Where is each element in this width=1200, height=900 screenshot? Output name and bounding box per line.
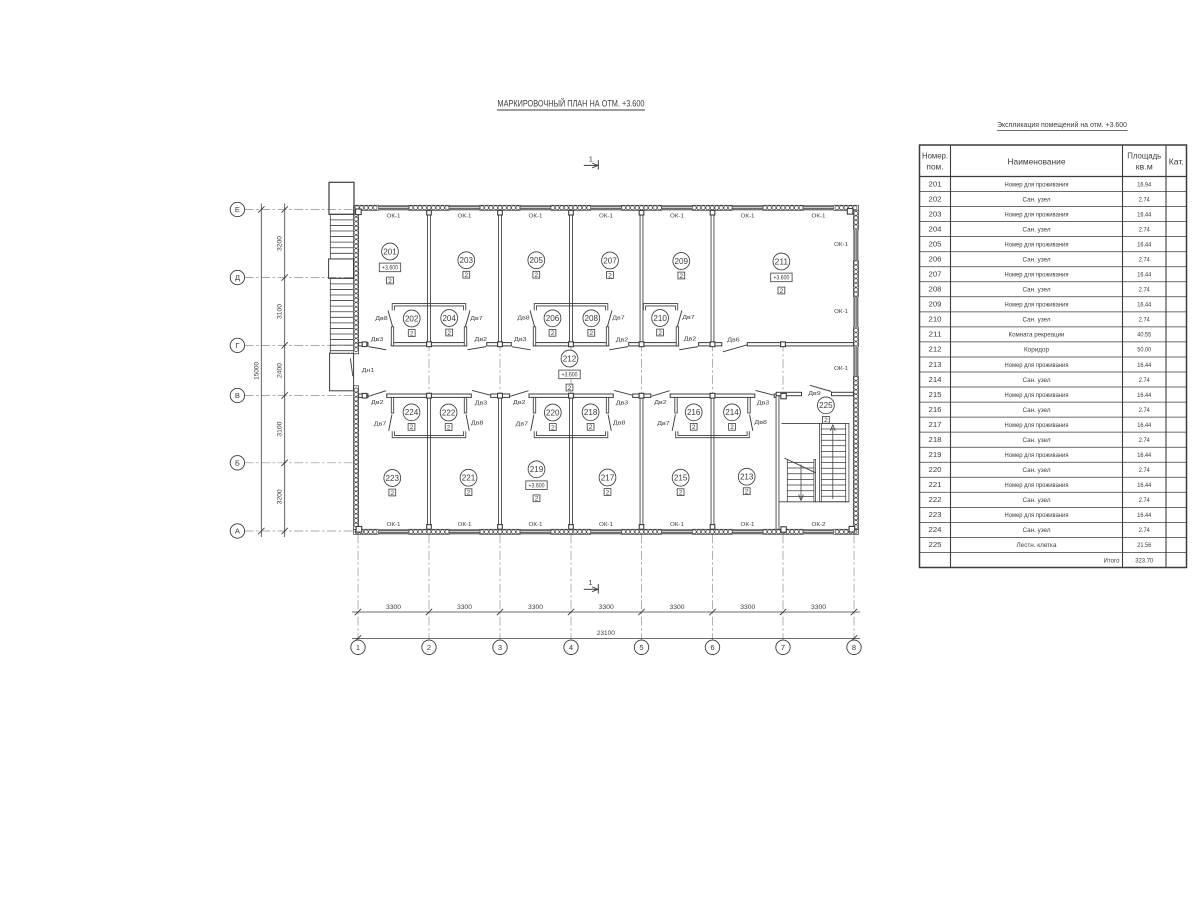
svg-text:Сан. узел: Сан. узел [1023,196,1051,203]
svg-text:Наименование: Наименование [1008,157,1066,167]
svg-text:Коридор: Коридор [1024,347,1049,354]
svg-text:3200: 3200 [277,236,284,251]
svg-text:2.74: 2.74 [1139,527,1150,534]
svg-text:2.74: 2.74 [1139,257,1150,264]
svg-text:ОК-1: ОК-1 [458,522,472,528]
svg-text:ОК-1: ОК-1 [812,214,826,220]
svg-text:ОК-1: ОК-1 [387,214,401,220]
svg-text:Сан. узел: Сан. узел [1023,527,1051,534]
svg-text:2.74: 2.74 [1139,437,1150,444]
svg-text:2: 2 [388,278,392,285]
svg-text:+3.600: +3.600 [382,265,398,272]
svg-text:ОК-1: ОК-1 [834,242,848,248]
svg-text:Дв8: Дв8 [471,421,484,427]
svg-text:206: 206 [929,257,942,264]
svg-text:Дв7: Дв7 [374,421,387,427]
svg-text:16.44: 16.44 [1137,272,1151,279]
svg-text:Сан. узел: Сан. узел [1023,467,1051,474]
svg-text:2.74: 2.74 [1139,497,1150,504]
svg-text:2: 2 [824,417,828,424]
svg-text:Дв3: Дв3 [757,400,770,406]
svg-text:2.74: 2.74 [1139,226,1150,233]
svg-text:2: 2 [780,288,784,295]
svg-text:2: 2 [410,424,414,431]
svg-text:214: 214 [725,408,739,417]
svg-text:2: 2 [391,490,395,497]
svg-text:Сан. узел: Сан. узел [1023,317,1051,324]
svg-text:2: 2 [606,489,610,496]
svg-text:Номер для проживания: Номер для проживания [1005,392,1069,399]
svg-text:2: 2 [589,424,593,431]
svg-text:2: 2 [680,273,684,280]
svg-text:220: 220 [546,408,560,417]
svg-text:208: 208 [929,287,942,294]
svg-text:2.74: 2.74 [1139,196,1150,203]
svg-text:207: 207 [929,272,942,279]
svg-text:210: 210 [929,317,942,324]
svg-text:205: 205 [929,241,942,248]
svg-text:ОК-1: ОК-1 [529,522,543,528]
svg-text:2: 2 [679,490,683,497]
svg-text:2: 2 [535,272,539,279]
svg-text:МАРКИРОВОЧНЫЙ ПЛАН НА ОТМ. +3.: МАРКИРОВОЧНЫЙ ПЛАН НА ОТМ. +3.600 [498,98,645,109]
svg-text:2: 2 [465,272,469,279]
svg-text:50.00: 50.00 [1137,347,1151,354]
svg-text:2400: 2400 [277,362,284,377]
svg-text:Дн1: Дн1 [362,368,375,374]
svg-text:1: 1 [356,643,360,652]
svg-text:ОК-1: ОК-1 [387,522,401,528]
svg-text:7: 7 [781,643,785,652]
svg-text:223: 223 [386,474,400,483]
svg-text:3300: 3300 [457,604,472,611]
svg-text:204: 204 [929,226,942,233]
svg-text:8: 8 [852,643,856,652]
svg-text:209: 209 [675,257,689,266]
svg-text:16.44: 16.44 [1137,392,1151,399]
svg-text:218: 218 [584,408,598,417]
svg-text:+3.600: +3.600 [773,275,789,282]
svg-text:Д: Д [235,273,240,282]
svg-text:204: 204 [442,314,456,323]
svg-text:5: 5 [639,643,643,652]
svg-text:Номер для проживания: Номер для проживания [1005,512,1069,519]
svg-text:2: 2 [447,330,451,337]
svg-text:Б: Б [235,459,240,468]
svg-text:Дв2: Дв2 [513,400,526,406]
svg-text:6: 6 [710,643,714,652]
svg-text:Номер для проживания: Номер для проживания [1005,302,1069,309]
svg-text:3100: 3100 [277,421,284,436]
svg-text:Номер для проживания: Номер для проживания [1005,241,1069,248]
svg-text:3200: 3200 [277,489,284,504]
svg-text:Дв2: Дв2 [684,336,697,342]
svg-text:3: 3 [498,643,502,652]
svg-text:212: 212 [563,354,577,363]
svg-text:2: 2 [568,385,572,392]
svg-text:15000: 15000 [253,361,260,379]
svg-text:216: 216 [929,407,942,414]
svg-text:2: 2 [551,424,555,431]
svg-text:2: 2 [551,330,555,337]
svg-text:16.44: 16.44 [1137,241,1151,248]
svg-text:213: 213 [929,362,942,369]
svg-text:220: 220 [929,467,942,474]
svg-text:201: 201 [929,181,942,188]
svg-text:3300: 3300 [811,604,826,611]
svg-text:Дв7: Дв7 [516,421,529,427]
svg-text:217: 217 [929,422,942,429]
svg-text:2: 2 [467,490,471,497]
svg-text:Дв8: Дв8 [613,421,626,427]
svg-text:2: 2 [692,424,696,431]
svg-text:Номер для проживания: Номер для проживания [1005,422,1069,429]
svg-text:Дв7: Дв7 [612,315,625,321]
svg-text:Сан. узел: Сан. узел [1023,407,1051,414]
svg-text:Дв2: Дв2 [616,337,629,343]
svg-text:202: 202 [929,196,942,203]
svg-text:203: 203 [460,256,474,265]
svg-text:211: 211 [929,332,942,339]
svg-text:225: 225 [929,542,942,549]
svg-text:ОК-2: ОК-2 [812,522,826,528]
svg-text:ОК-1: ОК-1 [834,366,848,372]
svg-text:В: В [235,391,240,400]
svg-text:222: 222 [442,408,456,417]
svg-text:Сан. узел: Сан. узел [1023,287,1051,294]
svg-text:216: 216 [687,408,701,417]
svg-text:211: 211 [775,257,789,266]
svg-text:Дв2: Дв2 [654,400,667,406]
svg-text:223: 223 [929,512,942,519]
svg-text:+3.600: +3.600 [562,372,578,379]
svg-text:Кат.: Кат. [1169,158,1184,167]
svg-text:ОК-1: ОК-1 [599,522,613,528]
svg-text:Дв6: Дв6 [727,337,740,343]
svg-text:Номер для проживания: Номер для проживания [1005,482,1069,489]
svg-text:16.94: 16.94 [1137,181,1151,188]
svg-text:ОК-1: ОК-1 [670,522,684,528]
svg-text:Дв2: Дв2 [371,400,384,406]
svg-text:Сан. узел: Сан. узел [1023,497,1051,504]
svg-text:Дв2: Дв2 [475,337,488,343]
svg-text:Г: Г [235,341,239,350]
svg-text:Дв8: Дв8 [517,315,530,321]
svg-text:206: 206 [546,314,560,323]
svg-text:Площадь: Площадь [1127,152,1161,161]
svg-text:2: 2 [590,330,594,337]
svg-text:2: 2 [427,643,431,652]
svg-text:201: 201 [383,247,397,256]
svg-text:4: 4 [569,643,573,652]
svg-text:16.44: 16.44 [1137,362,1151,369]
svg-text:Номер для проживания: Номер для проживания [1005,362,1069,369]
svg-text:ОК-1: ОК-1 [741,522,755,528]
svg-text:16.44: 16.44 [1137,512,1151,519]
svg-text:202: 202 [405,314,419,323]
svg-text:16.44: 16.44 [1137,302,1151,309]
svg-text:2: 2 [447,424,451,431]
svg-text:Экспликация помещений на отм.: Экспликация помещений на отм. +3.600 [997,120,1127,129]
svg-text:210: 210 [653,314,667,323]
svg-text:2: 2 [535,496,539,503]
svg-text:222: 222 [929,497,942,504]
svg-text:221: 221 [462,474,476,483]
svg-text:+3.600: +3.600 [529,483,545,490]
svg-text:3300: 3300 [599,604,614,611]
svg-text:208: 208 [585,314,599,323]
svg-text:217: 217 [601,473,615,482]
svg-text:Номер для проживания: Номер для проживания [1005,452,1069,459]
svg-text:Сан. узел: Сан. узел [1023,257,1051,264]
svg-text:40.55: 40.55 [1137,332,1151,339]
svg-text:кв.м: кв.м [1136,163,1153,172]
svg-text:Е: Е [235,205,240,214]
svg-text:ОК-1: ОК-1 [670,214,684,220]
svg-text:Дв3: Дв3 [616,400,629,406]
svg-text:221: 221 [929,482,942,489]
svg-text:3300: 3300 [386,604,401,611]
svg-text:16.44: 16.44 [1137,482,1151,489]
svg-text:21.56: 21.56 [1137,542,1151,549]
svg-text:16.44: 16.44 [1137,422,1151,429]
svg-text:3100: 3100 [277,303,284,318]
svg-text:Комната рекреации: Комната рекреации [1009,332,1065,339]
svg-text:215: 215 [929,392,942,399]
svg-text:ОК-1: ОК-1 [599,214,613,220]
svg-text:207: 207 [603,256,617,265]
svg-text:2: 2 [608,272,612,279]
svg-text:1: 1 [589,155,593,164]
svg-text:Номер для проживания: Номер для проживания [1005,181,1069,188]
svg-text:Сан. узел: Сан. узел [1023,226,1051,233]
svg-text:пом.: пом. [927,163,944,172]
svg-text:323.70: 323.70 [1135,557,1153,564]
svg-text:213: 213 [740,473,754,482]
svg-text:3300: 3300 [740,604,755,611]
svg-text:ОК-1: ОК-1 [834,309,848,315]
svg-text:214: 214 [929,377,942,384]
svg-text:224: 224 [929,527,942,534]
svg-text:Лестн. клетка: Лестн. клетка [1017,542,1057,549]
svg-text:218: 218 [929,437,942,444]
svg-text:2.74: 2.74 [1139,317,1150,324]
svg-text:224: 224 [405,408,419,417]
svg-text:2: 2 [658,330,662,337]
svg-text:Дв3: Дв3 [514,337,527,343]
svg-text:16.44: 16.44 [1137,452,1151,459]
svg-text:205: 205 [530,256,544,265]
svg-text:Дв8: Дв8 [754,420,767,426]
svg-text:Дв9: Дв9 [808,391,821,397]
svg-text:Дв7: Дв7 [682,315,695,321]
svg-text:ОК-1: ОК-1 [529,214,543,220]
svg-text:Сан. узел: Сан. узел [1023,437,1051,444]
svg-text:Номер для проживания: Номер для проживания [1005,272,1069,279]
svg-text:203: 203 [929,211,942,218]
svg-text:219: 219 [929,452,942,459]
svg-text:Дв7: Дв7 [470,316,483,322]
svg-text:Номер для проживания: Номер для проживания [1005,211,1069,218]
svg-text:Номер.: Номер. [922,152,948,161]
svg-text:212: 212 [929,347,942,354]
svg-text:219: 219 [530,465,544,474]
svg-text:2: 2 [745,489,749,496]
svg-text:2: 2 [410,330,414,337]
svg-text:2.74: 2.74 [1139,467,1150,474]
svg-text:2.74: 2.74 [1139,407,1150,414]
svg-text:Дв7: Дв7 [657,421,670,427]
svg-text:ОК-1: ОК-1 [458,214,472,220]
svg-text:2.74: 2.74 [1139,377,1150,384]
svg-text:209: 209 [929,302,942,309]
svg-text:ОК-1: ОК-1 [741,214,755,220]
svg-text:3300: 3300 [528,604,543,611]
svg-text:Итого: Итого [1104,557,1120,564]
svg-text:Дв3: Дв3 [475,400,488,406]
svg-text:215: 215 [674,474,688,483]
svg-text:16.44: 16.44 [1137,211,1151,218]
svg-text:Дв3: Дв3 [371,337,384,343]
svg-text:1: 1 [588,578,592,587]
svg-text:3300: 3300 [670,604,685,611]
svg-text:23100: 23100 [597,630,615,637]
svg-text:2.74: 2.74 [1139,287,1150,294]
svg-text:2: 2 [730,424,734,431]
svg-text:Дв8: Дв8 [375,316,388,322]
svg-text:225: 225 [819,401,833,410]
svg-text:Сан. узел: Сан. узел [1023,377,1051,384]
